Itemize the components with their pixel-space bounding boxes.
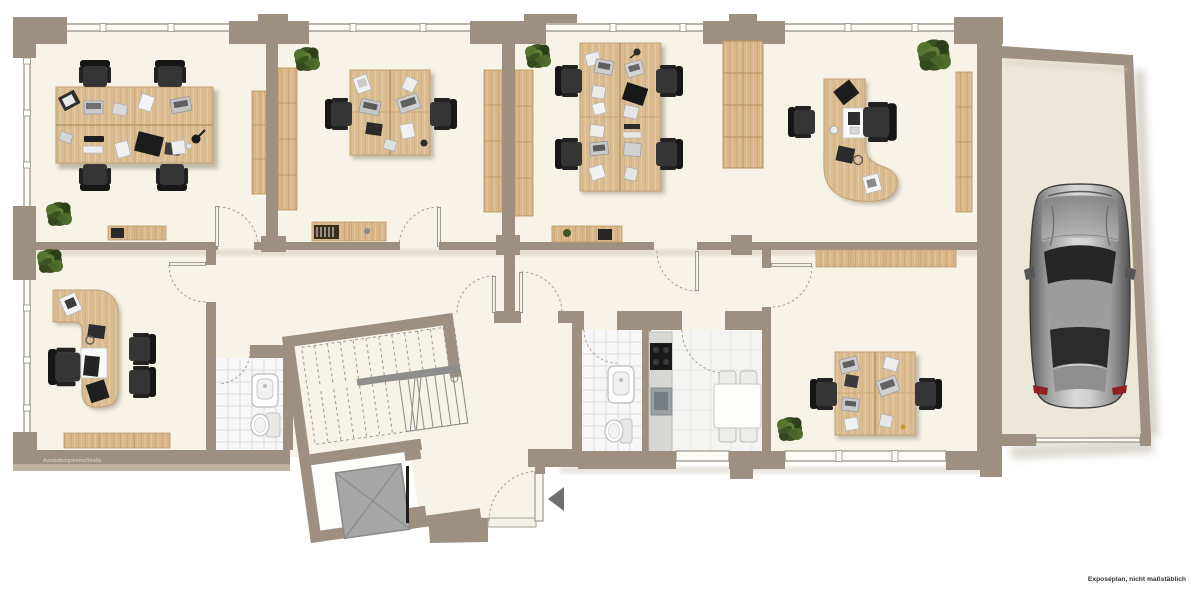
svg-text:Exposéplan, nicht maßstäblich: Exposéplan, nicht maßstäblich xyxy=(1088,576,1186,583)
svg-text:AusstattungsImmoStraße: AusstattungsImmoStraße xyxy=(43,458,102,464)
